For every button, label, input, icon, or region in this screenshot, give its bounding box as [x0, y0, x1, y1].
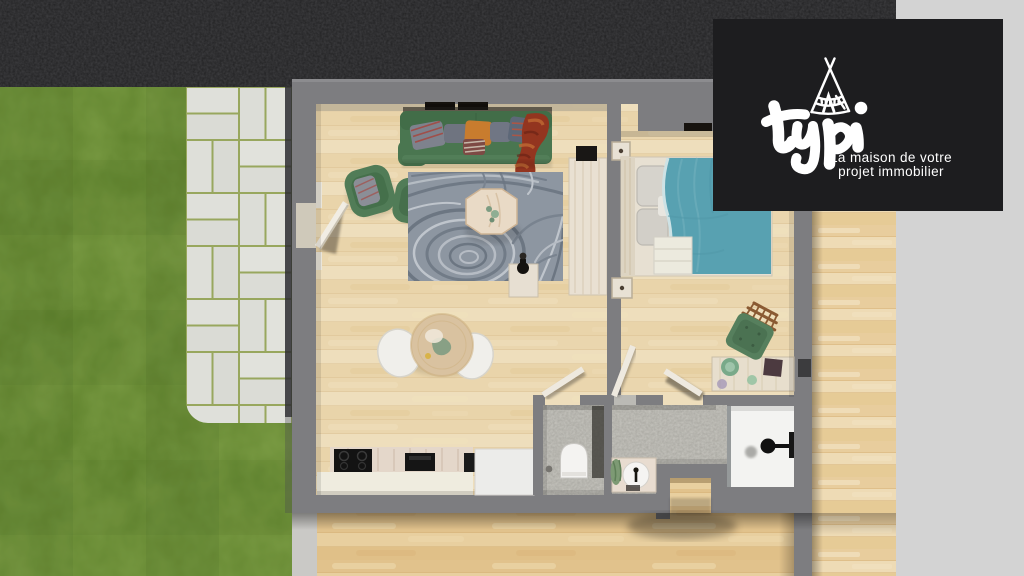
svg-text:La maison de votre: La maison de votre — [830, 150, 952, 165]
svg-text:projet immobilier: projet immobilier — [838, 164, 944, 179]
